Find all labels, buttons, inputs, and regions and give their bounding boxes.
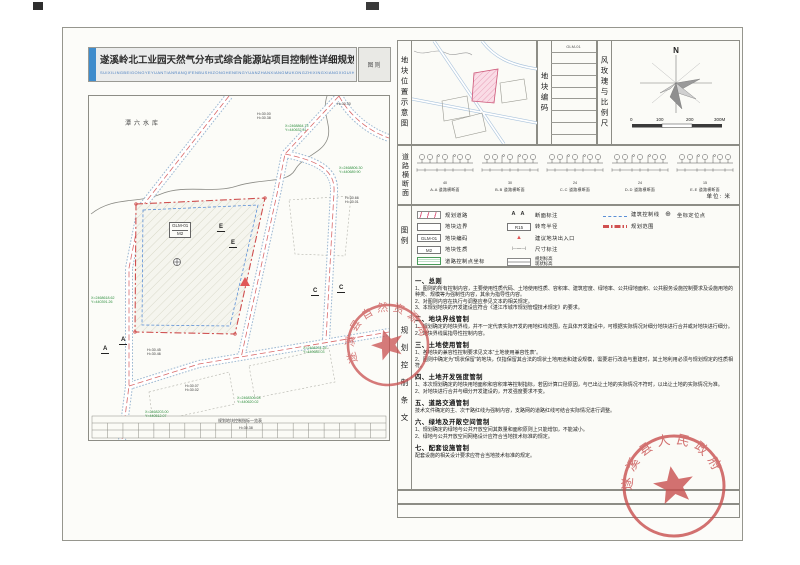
location-panel-label: 地块位置示意图 [399, 56, 410, 130]
notes-paragraph: 2、图则中确定为“现状保留”的地块，仅指保留其合法的现状土地用途和建设规模，需要… [415, 357, 733, 370]
road-section: 24C-C 道路横断面 [543, 150, 607, 204]
notes-paragraph: 2、地块界线属指导性控制内容。 [415, 331, 733, 338]
notes-paragraph: 3、本规划地块的开发建设应符合《湛江市城市规划管理技术规定》的要求。 [415, 305, 733, 312]
section-mark: E [217, 224, 225, 232]
road-legend-icon [417, 211, 441, 219]
page-title: 遂溪岭北工业园天然气分布式综合能源站项目控制性详细规划 [100, 52, 354, 66]
road-section: 24D-D 道路横断面 [608, 150, 672, 204]
notes-paragraph: 1、各地块的兼容性控制要求见文本“土地使用兼容性表”。 [415, 350, 733, 357]
coordinate-annotation: X=2468306.28Y=440620.02 [237, 396, 260, 405]
point-legend-icon: ⊕ [663, 211, 673, 219]
notes-paragraph: 1、规划确定的地块界线，并不一定代表实际开发的用地红线范围，在具体开发建设中，可… [415, 324, 733, 331]
section-total-width: 30 [478, 181, 542, 185]
parcel-code-row [551, 88, 596, 100]
notes-paragraph: 1、本次规划确定的地块用地面积和容积率等控制指标，若因计算口径原因，与已出让土地… [415, 382, 733, 389]
svg-text:100: 100 [656, 117, 664, 122]
title-bar: 遂溪岭北工业园天然气分布式综合能源站项目控制性详细规划 SUIXILINGBEI… [88, 47, 357, 82]
notes-paragraph: 2、绿地与公共开放空间网络设计应符合当地技术标准的规定。 [415, 434, 733, 441]
svg-text:0: 0 [630, 117, 633, 122]
legend-label: 地块性质 [445, 246, 468, 253]
legend-label: 规划道路 [445, 212, 468, 219]
entry-legend-icon: ▲ [507, 234, 531, 242]
parcel-code: GLM-01 [172, 223, 188, 231]
section-caption: B-B 道路横断面 [478, 187, 542, 193]
wind-rose-petals [660, 79, 700, 109]
parcel-code-row [551, 53, 596, 65]
legend-label: 建筑控制线 [631, 211, 659, 218]
coordinate-annotation: X=2468864.75Y=440632.51 [285, 124, 308, 133]
section-caption: A-A 道路横断面 [413, 187, 477, 193]
legend-grid: 规划道路地块边界GLM-01地块编码M2地块性质道路控制点坐标A A断面标注R1… [411, 206, 739, 266]
secmark-legend-icon: A A [507, 211, 531, 219]
registration-mark [366, 2, 379, 10]
road-sections-panel: 道路横断面 40A-A 道路横断面30B-B 道路横断面24C-C 道路横断面2… [397, 145, 740, 205]
parcel-code-row [551, 123, 596, 135]
elev-legend-icon [507, 258, 531, 266]
svg-text:200: 200 [686, 117, 694, 122]
notes-panel-label: 规划控制条文 [399, 326, 410, 431]
legend-entry: R15转弯半径 [507, 223, 558, 231]
legend-panel-label: 图例 [399, 226, 410, 247]
compass-panel: 风玫瑰与比例尺 N 0 100 200 300M [597, 40, 740, 145]
section-caption: D-D 道路横断面 [608, 187, 672, 193]
page-title-pinyin: SUIXILINGBEIGONGYEYUANTIANRANQIFENBUSHIZ… [100, 70, 354, 75]
legend-label: 建议地块出入口 [535, 235, 575, 242]
legend-label: 规划范围 [631, 223, 654, 230]
legend-entry: ⊢—⊣尺寸标注 [507, 246, 558, 254]
use-legend-icon: M2 [417, 246, 441, 254]
notes-paragraph: 2、对地块进行合并与细分开发建设的，开发强度要求不变。 [415, 389, 733, 396]
title-accent [89, 48, 96, 81]
svg-text:300M: 300M [714, 117, 726, 122]
parcel-use: M2 [172, 231, 188, 238]
coordinate-annotation: X=2468231.25Y=440685.03 [303, 346, 326, 355]
parcel-code-row [551, 111, 596, 123]
legend-entry: ⊕坐标定位点 [663, 211, 705, 219]
legend-label: 转弯半径 [535, 223, 558, 230]
plan-map: 潭六水库 GLM-01 M2 规划地块控制指标一览表 X=2468864.75Y… [88, 95, 390, 441]
elevation-annotation: H=30.30 [337, 102, 351, 106]
section-total-width: 24 [543, 181, 607, 185]
rect-legend-icon [417, 223, 441, 231]
legend-entry: A A断面标注 [507, 211, 558, 219]
map-annotations-layer: 潭六水库 GLM-01 M2 规划地块控制指标一览表 X=2468864.75Y… [89, 96, 389, 440]
legend-entry: 规划标高现状标高 [507, 257, 553, 267]
coordinate-annotation: X=2468806.30Y=440689.90 [339, 166, 362, 175]
notes-text: 一、总则1、图则的所有控制内容，主要使用性质代码、土地使用性质、容积率、建筑密度… [415, 273, 733, 485]
scale-bar: 0 100 200 300M [630, 117, 726, 128]
road-sections-panel-label: 道路横断面 [400, 153, 410, 198]
section-mark: E [229, 240, 237, 248]
unit-label: 单位: 米 [706, 192, 731, 200]
notes-paragraph: 1、图则的所有控制内容，主要使用性质代码、土地使用性质、容积率、建筑密度、绿地率… [415, 286, 733, 299]
north-label: N [673, 46, 679, 55]
lake-label: 潭六水库 [125, 118, 161, 127]
compass-panel-label: 风玫瑰与比例尺 [599, 56, 610, 130]
road-section: 40A-A 道路横断面 [413, 150, 477, 204]
elevation-annotation: H=30.66H=30.01 [345, 196, 359, 205]
elevation-annotation: H=30.45H=30.46 [147, 348, 161, 357]
legend-label: 规划标高现状标高 [535, 257, 553, 267]
notes-heading: 四、土地开发强度管制 [415, 372, 733, 381]
legend-entry: M2地块性质 [417, 246, 468, 254]
legend-entry: ▲建议地块出入口 [507, 234, 575, 242]
wind-rose: N 0 100 200 300M [612, 41, 740, 144]
parcel-code-row: GLM-01 [551, 41, 596, 53]
legend-label: 地块编码 [445, 235, 468, 242]
notes-paragraph: 1、规划确定的绿地与公共开放空间其数量和面积原则上只能增加，不能减小。 [415, 427, 733, 434]
legend-label: 地块边界 [445, 223, 468, 230]
titleblock-strip [397, 504, 740, 518]
location-minimap [412, 41, 537, 144]
notes-heading: 七、配套设施管制 [415, 443, 733, 452]
notes-heading: 一、总则 [415, 276, 733, 285]
parcel-code-box: GLM-01 M2 [169, 222, 191, 238]
radius-legend-icon: R15 [507, 223, 531, 231]
notes-heading: 六、绿地及开敞空间管制 [415, 417, 733, 426]
section-mark: C [311, 288, 319, 296]
legend-entry: 地块边界 [417, 223, 468, 231]
legend-label: 道路控制点坐标 [445, 258, 485, 265]
legend-panel: 图例 规划道路地块边界GLM-01地块编码M2地块性质道路控制点坐标A A断面标… [397, 205, 740, 267]
coordinate-annotation: X=2468618.62Y=440391.26 [91, 296, 114, 305]
elevation-annotation: H=30.07H=30.02 [185, 384, 199, 393]
parcel-code-table: GLM-01 [551, 41, 596, 144]
section-mark: C [337, 285, 345, 293]
elevation-annotation: H=30.38 [239, 426, 253, 430]
parcel-code-row [551, 76, 596, 88]
road-section: 30B-B 道路横断面 [478, 150, 542, 204]
notes-paragraph: 技术文件确定的主、次干路红线为强制内容，支路网的道路红线可结合实际情况进行调整。 [415, 408, 733, 415]
legend-entry: 道路控制点坐标 [417, 257, 485, 265]
sheet-type-box: 图则 [358, 47, 391, 82]
section-mark: A [119, 337, 127, 345]
legend-entry: GLM-01地块编码 [417, 234, 468, 242]
parcel-code-panel-label: 地块编码 [539, 72, 550, 114]
notes-heading: 五、道路交通管制 [415, 398, 733, 407]
parcel-code-row [551, 64, 596, 76]
registration-mark [33, 2, 43, 10]
parcel-code-panel: 地块编码 GLM-01 [537, 40, 597, 145]
section-total-width: 24 [608, 181, 672, 185]
dim-legend-icon: ⊢—⊣ [507, 246, 531, 254]
location-panel: 地块位置示意图 [397, 40, 537, 145]
notes-paragraph: 配套设施的相关设计要求应符合当地技术标准的规定。 [415, 453, 733, 460]
notes-heading: 二、地块界线管制 [415, 314, 733, 323]
notes-heading: 三、土地使用管制 [415, 340, 733, 349]
elevation-annotation: H=30.00H=30.38 [257, 112, 271, 121]
legend-entry: 规划道路 [417, 211, 468, 219]
legend-label: 坐标定位点 [677, 212, 705, 219]
coord-legend-icon [417, 257, 441, 265]
indicator-table-title: 规划地块控制指标一览表 [89, 418, 391, 424]
legend-label: 断面标注 [535, 212, 558, 219]
legend-label: 尺寸标注 [535, 246, 558, 253]
coordinate-annotation: X=2468203.00Y=440512.07 [145, 410, 168, 419]
section-mark: A [101, 346, 109, 354]
road-sections-row: 40A-A 道路横断面30B-B 道路横断面24C-C 道路横断面24D-D 道… [413, 150, 737, 204]
section-caption: C-C 道路横断面 [543, 187, 607, 193]
section-total-width: 15 [673, 181, 737, 185]
parcel-code-row [551, 99, 596, 111]
titleblock-strip [397, 490, 740, 504]
scope-legend-icon [603, 225, 627, 228]
notes-panel: 规划控制条文 一、总则1、图则的所有控制内容，主要使用性质代码、土地使用性质、容… [397, 267, 740, 490]
bcl-legend-icon [603, 216, 627, 217]
section-total-width: 40 [413, 181, 477, 185]
minimap-parcel [472, 69, 498, 103]
legend-entry: 建筑控制线 [603, 211, 659, 218]
code-legend-icon: GLM-01 [417, 234, 441, 242]
legend-entry: 规划范围 [603, 223, 654, 230]
